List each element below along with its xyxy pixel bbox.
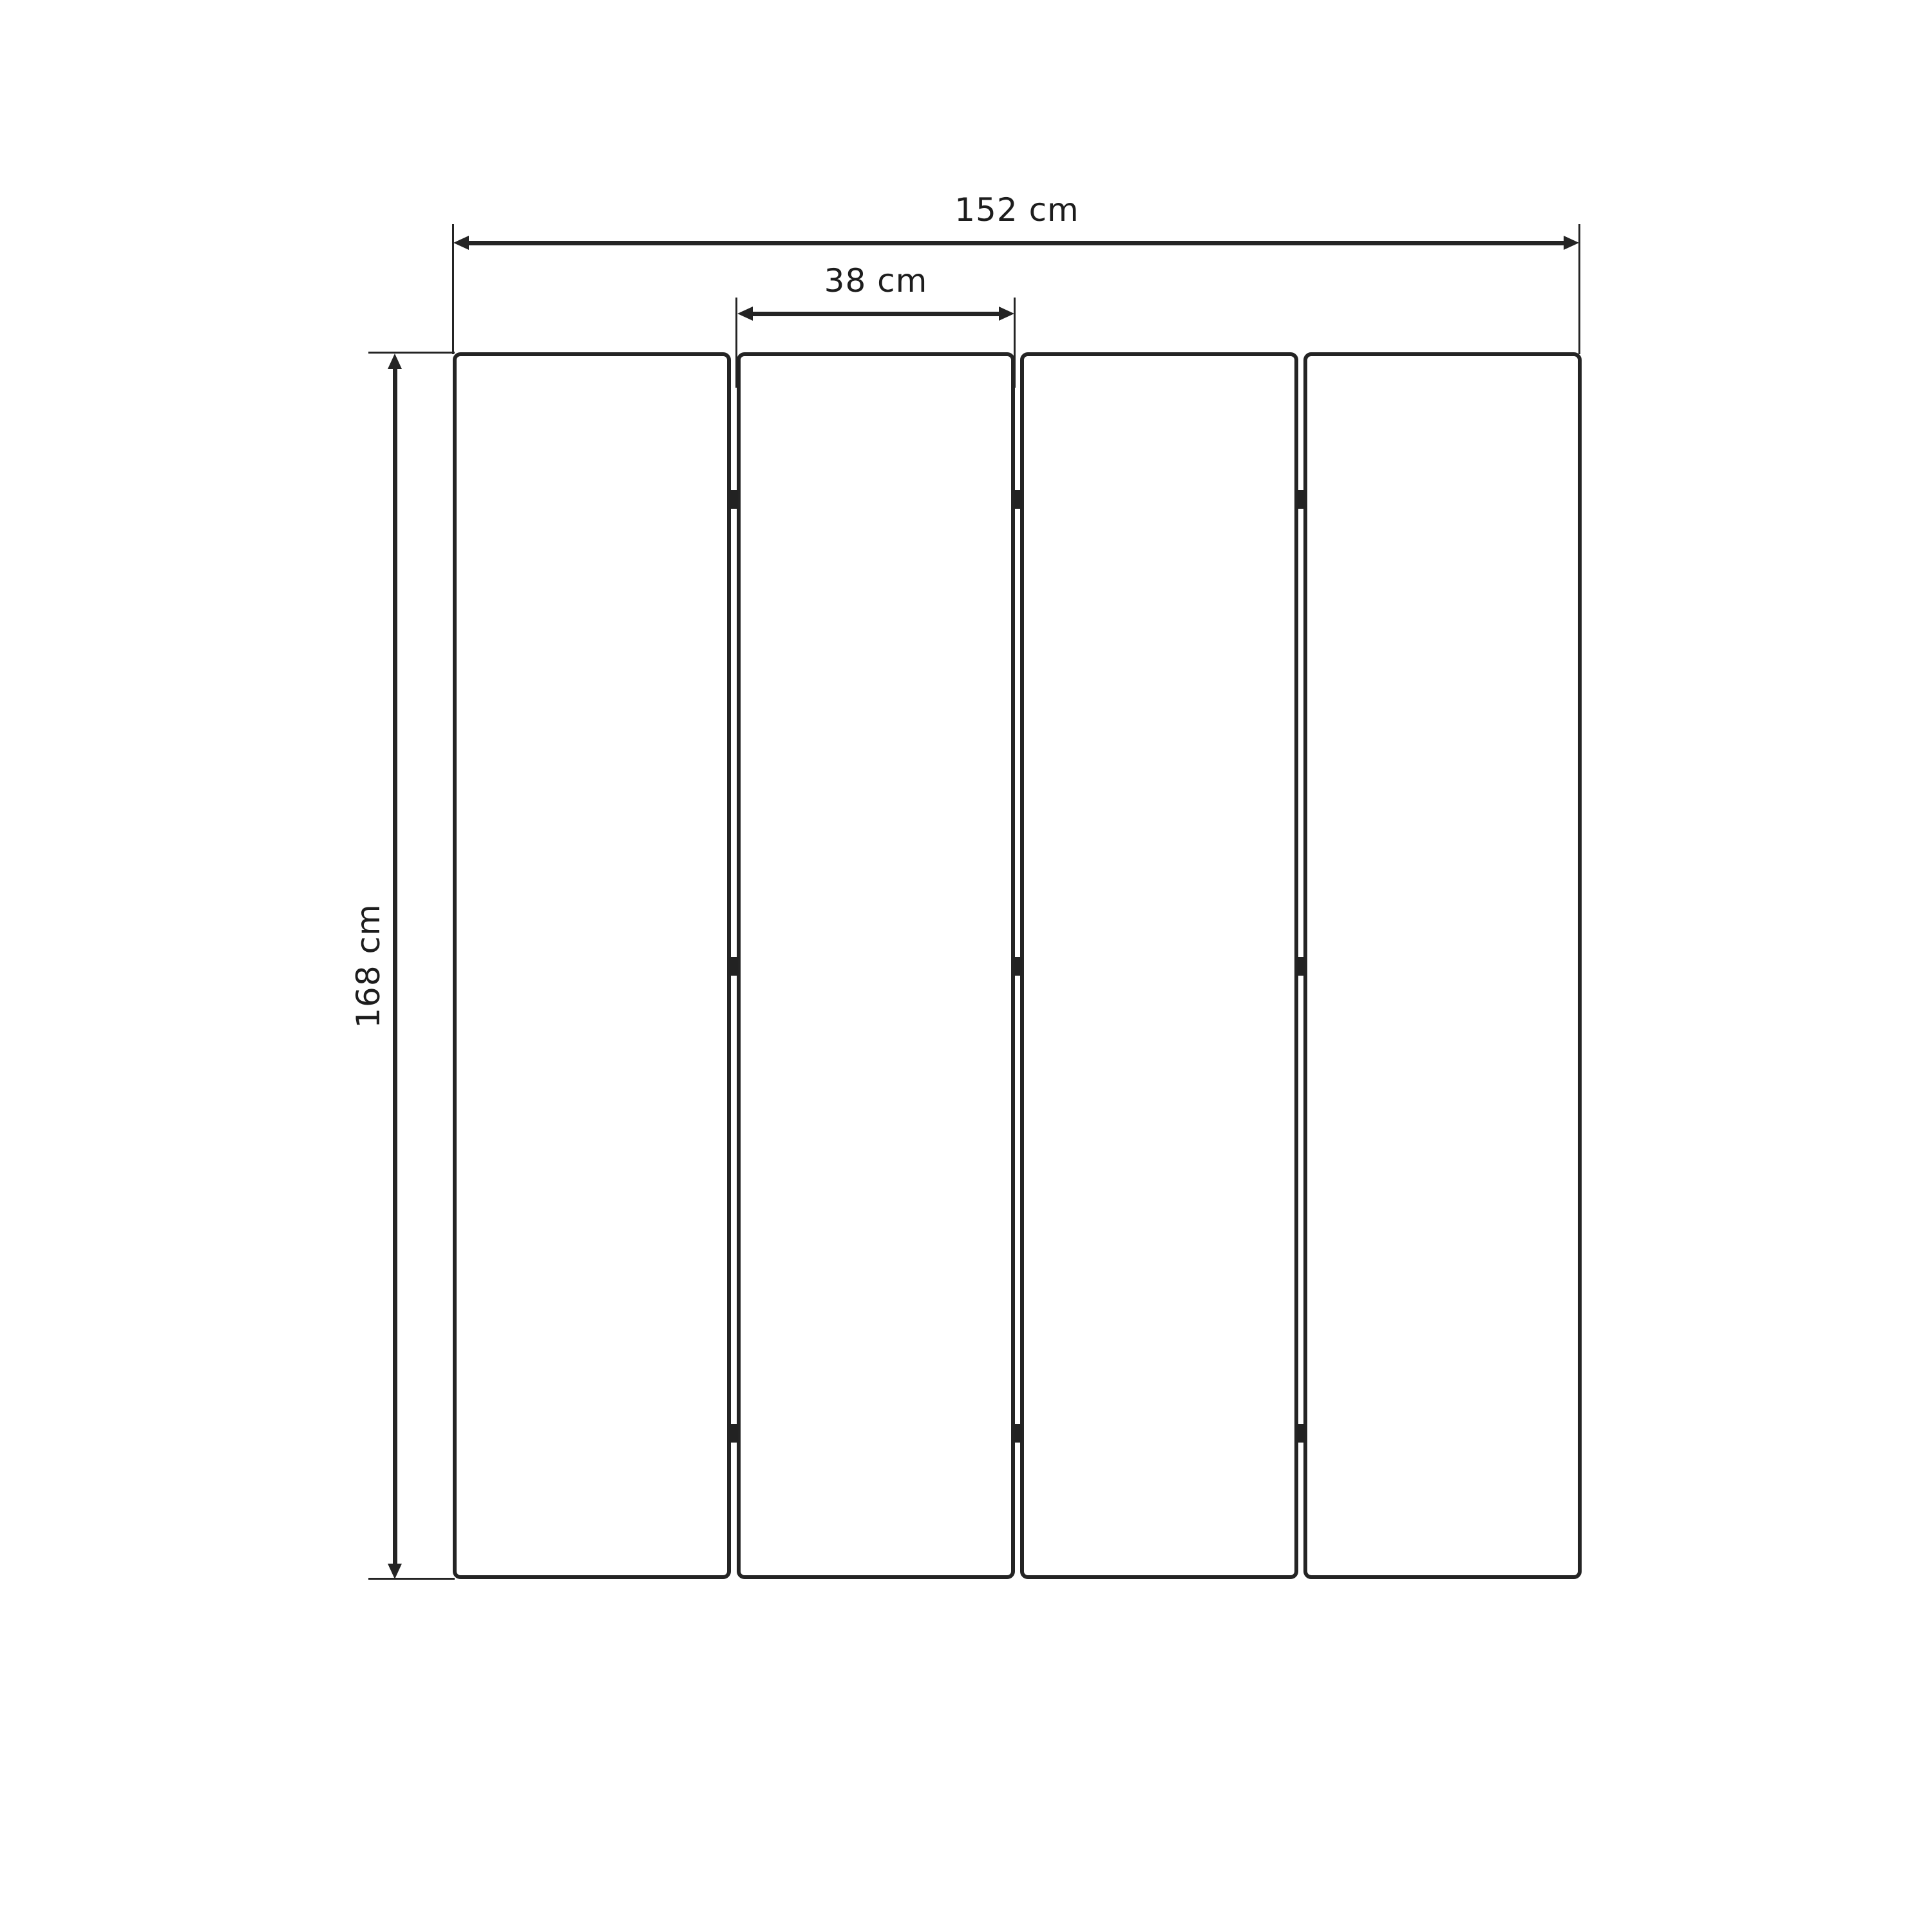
panel-1 xyxy=(453,352,731,1579)
hinge-mark xyxy=(1297,490,1305,509)
dimension-drawing-canvas: 152 cm 38 cm 168 cm xyxy=(0,0,1932,1932)
dimension-line xyxy=(465,241,1567,245)
hinge-mark xyxy=(1297,1424,1305,1443)
dimension-line xyxy=(393,365,397,1567)
extension-line xyxy=(368,352,455,354)
hinge-mark xyxy=(1014,957,1022,976)
panel-4 xyxy=(1303,352,1582,1579)
arrowhead-left-icon xyxy=(453,236,469,250)
hinge-mark xyxy=(730,957,738,976)
height-label: 168 cm xyxy=(349,869,388,1063)
hinge-mark xyxy=(1297,957,1305,976)
arrowhead-right-icon xyxy=(1564,236,1579,250)
extension-line xyxy=(368,1578,455,1580)
panel-2 xyxy=(737,352,1015,1579)
arrowhead-up-icon xyxy=(388,354,402,369)
arrowhead-down-icon xyxy=(388,1564,402,1579)
total-width-label: 152 cm xyxy=(920,191,1113,229)
panel-width-label: 38 cm xyxy=(779,261,972,300)
dimension-line xyxy=(748,312,1003,316)
arrowhead-right-icon xyxy=(999,307,1014,321)
hinge-mark xyxy=(730,1424,738,1443)
hinge-mark xyxy=(1014,490,1022,509)
panel-3 xyxy=(1020,352,1298,1579)
arrowhead-left-icon xyxy=(737,307,753,321)
hinge-mark xyxy=(730,490,738,509)
hinge-mark xyxy=(1014,1424,1022,1443)
